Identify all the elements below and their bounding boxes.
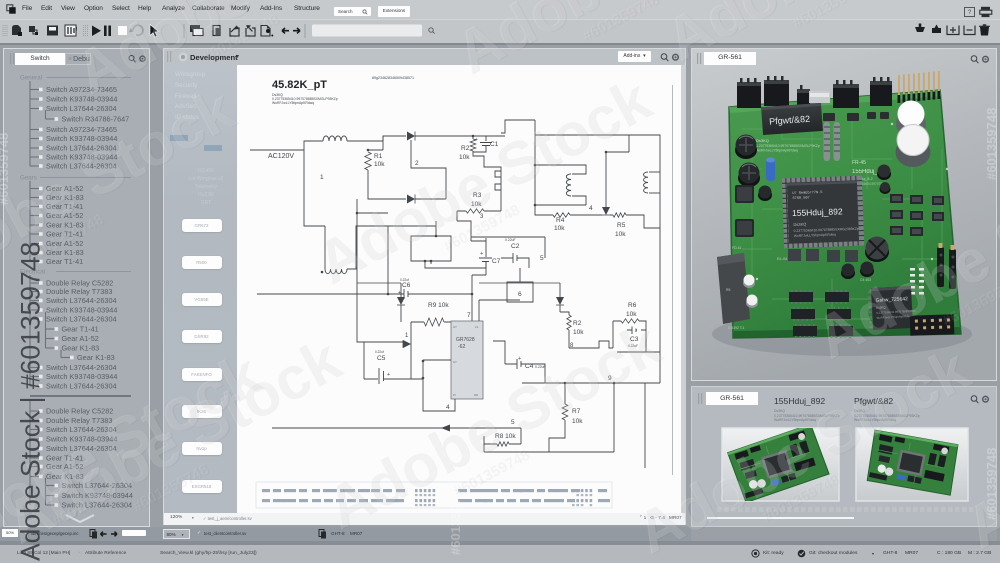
svg-text:Gear A1-52: Gear A1-52 [46, 239, 83, 248]
svg-text:Switch K93748-03944: Switch K93748-03944 [46, 134, 117, 143]
svg-text:Switch A97234-73465: Switch A97234-73465 [46, 85, 117, 94]
svg-text:Switch K93748-03944: Switch K93748-03944 [46, 434, 117, 443]
svg-text:Gear A1-52: Gear A1-52 [46, 184, 83, 193]
svg-text:Switch L37644-26304: Switch L37644-26304 [46, 104, 117, 113]
svg-text:C 5392 T.1: C 5392 T.1 [728, 326, 744, 330]
svg-text:Ds3KQ: Ds3KQ [793, 222, 806, 227]
svg-text:Switch L37644-26304: Switch L37644-26304 [46, 161, 117, 170]
svg-text:Switch L37644-26304: Switch L37644-26304 [46, 314, 117, 323]
svg-text:Switch A97234-73465: Switch A97234-73465 [46, 125, 117, 134]
svg-text:0.23775365410.997078885SXMGLP9: 0.23775365410.997078885SXMGLP9KZp [756, 144, 820, 148]
svg-text:Switch L37644-26304: Switch L37644-26304 [46, 444, 117, 453]
svg-text:155Hduj_892: 155Hduj_892 [792, 206, 843, 218]
svg-text:Ds3KQ: Ds3KQ [876, 305, 887, 310]
svg-text:Switch K93748-03944: Switch K93748-03944 [46, 94, 117, 103]
svg-text:?: ? [968, 10, 972, 16]
svg-text:Switch R34786-7647: Switch R34786-7647 [62, 114, 130, 123]
svg-text:Gear T1-41: Gear T1-41 [46, 229, 83, 238]
svg-text:C4 453: C4 453 [860, 278, 871, 282]
svg-text:Gear K1-83: Gear K1-83 [77, 353, 115, 362]
svg-text:Gear A1-52: Gear A1-52 [46, 462, 83, 471]
svg-text:Gear K1-83: Gear K1-83 [62, 343, 100, 352]
svg-text:Ds3KQ: Ds3KQ [756, 138, 769, 143]
svg-text:Gears: Gears [20, 175, 37, 182]
svg-text:Gear T1-41: Gear T1-41 [46, 202, 83, 211]
svg-text:Switch K93748-03944: Switch K93748-03944 [62, 491, 133, 500]
svg-text:Switch L37644-26304: Switch L37644-26304 [46, 143, 117, 152]
svg-text:R5: R5 [726, 288, 730, 292]
svg-text:Switch K93748-03944: Switch K93748-03944 [46, 372, 117, 381]
svg-text:Gear K1-83: Gear K1-83 [46, 193, 84, 202]
svg-text:Electrical: Electrical [20, 269, 45, 276]
svg-text:Switch L37644-26304: Switch L37644-26304 [62, 500, 133, 509]
svg-text:Double Relay T7383: Double Relay T7383 [46, 416, 112, 425]
svg-text:Switch L37644-26304: Switch L37644-26304 [46, 363, 117, 372]
svg-text:Gear K1-83: Gear K1-83 [46, 248, 84, 257]
svg-text:WoRFJwLLY5fqmApKRdwq: WoRFJwLLY5fqmApKRdwq [756, 149, 798, 153]
svg-text:Gear T1-41: Gear T1-41 [62, 324, 99, 333]
svg-text:Switch L37644-26304: Switch L37644-26304 [46, 381, 117, 390]
svg-text:General: General [20, 75, 42, 82]
svg-text:Switch L37644-26304: Switch L37644-26304 [46, 296, 117, 305]
svg-text:Gear A1-52: Gear A1-52 [62, 334, 99, 343]
svg-text:Gear K1-83: Gear K1-83 [46, 472, 84, 481]
svg-text:Gear A1-52: Gear A1-52 [46, 211, 83, 220]
svg-text:Switch L37644-26304: Switch L37644-26304 [62, 481, 133, 490]
svg-text:Switch L37644-26304: Switch L37644-26304 [46, 425, 117, 434]
svg-text:Switch K93748-03944: Switch K93748-03944 [46, 152, 117, 161]
svg-text:FD-41: FD-41 [732, 246, 742, 250]
svg-text:S7R8_%07: S7R8_%07 [792, 196, 809, 201]
svg-text:Double Relay C5282: Double Relay C5282 [46, 406, 113, 415]
svg-text:Switch K93748-03944: Switch K93748-03944 [46, 305, 117, 314]
svg-text:Gear T1-41: Gear T1-41 [46, 257, 83, 266]
svg-text:Gear K1-83: Gear K1-83 [46, 220, 84, 229]
svg-text:E4:-B4: E4:-B4 [777, 257, 787, 261]
svg-text:FR-45: FR-45 [852, 160, 866, 166]
svg-text:Double Relay T7383: Double Relay T7383 [46, 287, 112, 296]
